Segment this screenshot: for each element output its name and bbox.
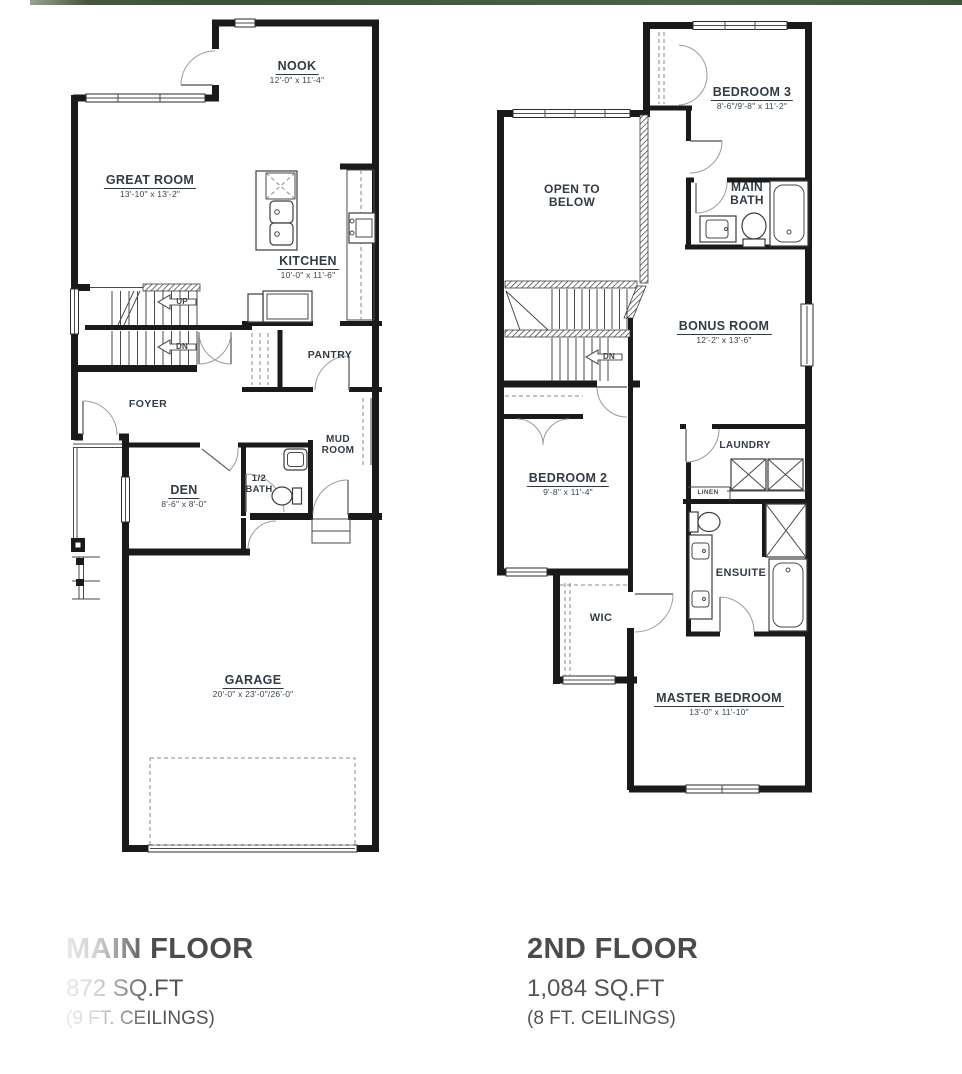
label-line: MAIN [730, 181, 764, 194]
room-dims: 8'-6" x 8'-0" [161, 500, 206, 510]
label-line: ROOM [322, 445, 355, 456]
porch-details [71, 444, 122, 599]
room-name: KITCHEN [277, 254, 339, 270]
room-label-ensuite: ENSUITE [716, 567, 766, 579]
room-label-laundry: LAUNDRY [719, 440, 770, 451]
floorplan-page: { "page": { "accent_strip_color": "#3c52… [0, 0, 962, 1074]
main-floor-info: MAIN FLOOR 872 SQ.FT (9 FT. CEILINGS) [66, 933, 254, 1030]
room-label-nook: NOOK 12'-0" x 11'-4" [270, 57, 325, 86]
room-label-open-to-below: OPEN TO BELOW [544, 183, 600, 210]
second-floor-walls [497, 22, 812, 792]
garage-details [148, 758, 357, 852]
room-label-linen: LINEN [698, 489, 719, 496]
room-dims: 20'-0" x 23'-0"/26'-0" [213, 690, 294, 700]
room-dims: 8'-6"/9'-8" x 11'-2" [711, 102, 793, 112]
room-name: BONUS ROOM [677, 319, 772, 335]
room-name: NOOK [276, 59, 319, 75]
room-label-bonus-room: BONUS ROOM 12'-2" x 13'-6" [677, 317, 772, 346]
stair-up-label: UP [176, 298, 188, 307]
room-label-garage: GARAGE 20'-0" x 23'-0"/26'-0" [213, 671, 294, 700]
second-floor-area: 1,084 SQ.FT [527, 975, 698, 1003]
room-dims: 12'-0" x 11'-4" [270, 76, 325, 86]
label-line: BATH [245, 485, 272, 496]
room-dims: 12'-2" x 13'-6" [677, 336, 772, 346]
label-line: BATH [730, 194, 764, 207]
room-label-kitchen: KITCHEN 10'-0" x 11'-6" [277, 252, 339, 281]
room-label-foyer: FOYER [129, 399, 167, 411]
room-name: MASTER BEDROOM [654, 691, 784, 707]
room-label-main-bath: MAIN BATH [730, 181, 764, 208]
room-label-bedroom2: BEDROOM 2 9'-8" x 11'-4" [527, 469, 609, 498]
room-dims: 13'-10" x 13'-2" [104, 190, 196, 200]
room-label-mud-room: MUD ROOM [322, 434, 355, 456]
main-floor-title: MAIN FLOOR [66, 933, 254, 966]
room-label-great-room: GREAT ROOM 13'-10" x 13'-2" [104, 171, 196, 200]
room-label-pantry: PANTRY [308, 350, 352, 362]
stair-down-label-2f: DN [603, 353, 615, 362]
room-label-wic: WIC [590, 612, 613, 624]
room-dims: 13'-0" x 11'-10" [654, 708, 784, 718]
room-dims: 10'-0" x 11'-6" [277, 271, 339, 281]
label-line: BELOW [544, 196, 600, 209]
floor-plan-drawing: .wx{stroke:#1a1a1a;stroke-width:7;fill:n… [0, 0, 962, 1074]
room-name: BEDROOM 3 [711, 85, 793, 101]
room-name: BEDROOM 2 [527, 471, 609, 487]
room-name: GREAT ROOM [104, 173, 196, 189]
room-label-half-bath: 1/2 BATH [245, 474, 272, 495]
room-label-bedroom3: BEDROOM 3 8'-6"/9'-8" x 11'-2" [711, 83, 793, 112]
second-floor-windows [506, 21, 813, 793]
label-line: OPEN TO [544, 183, 600, 196]
second-floor-title: 2ND FLOOR [527, 933, 698, 966]
room-label-master-bedroom: MASTER BEDROOM 13'-0" x 11'-10" [654, 689, 784, 718]
stair-down-label: DN [176, 343, 188, 352]
half-bath-fixtures [272, 449, 307, 505]
second-floor-info: 2ND FLOOR 1,084 SQ.FT (8 FT. CEILINGS) [527, 933, 698, 1030]
main-floor-ceilings: (9 FT. CEILINGS) [66, 1008, 254, 1030]
label-line: MUD [322, 434, 355, 445]
second-floor-ceilings: (8 FT. CEILINGS) [527, 1008, 698, 1030]
main-floor-area: 872 SQ.FT [66, 975, 254, 1003]
room-name: DEN [168, 483, 199, 499]
room-name: GARAGE [223, 673, 284, 689]
mud-room-details [312, 398, 371, 543]
room-label-den: DEN 8'-6" x 8'-0" [161, 481, 206, 510]
room-dims: 9'-8" x 11'-4" [527, 488, 609, 498]
